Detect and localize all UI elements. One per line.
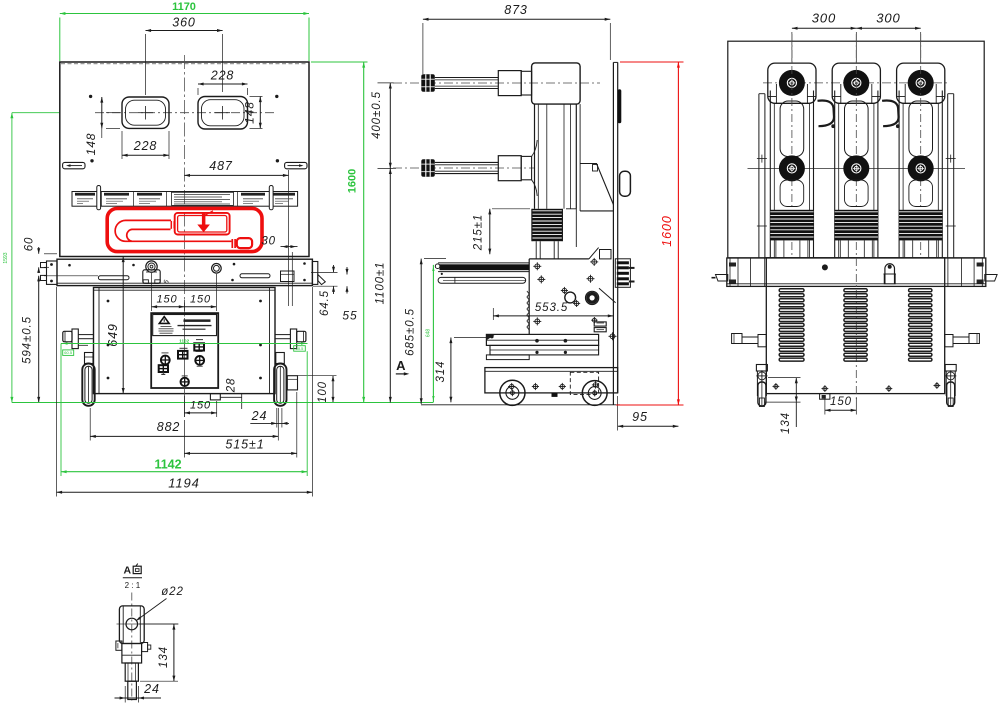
svg-text:24: 24 <box>251 409 268 423</box>
svg-text:A: A <box>124 565 132 577</box>
svg-text:ø22: ø22 <box>161 586 184 598</box>
svg-text:685±0.5: 685±0.5 <box>405 308 417 356</box>
svg-text:60.5: 60.5 <box>296 346 305 351</box>
svg-text:148: 148 <box>243 101 257 124</box>
svg-text:1194: 1194 <box>168 475 200 490</box>
svg-text:1170: 1170 <box>172 1 196 13</box>
svg-text:60: 60 <box>24 237 36 252</box>
svg-text:28: 28 <box>226 378 238 394</box>
svg-text:1600: 1600 <box>347 169 359 193</box>
svg-text:400±0.5: 400±0.5 <box>371 91 383 139</box>
svg-text:1142: 1142 <box>154 457 181 471</box>
svg-text:1100±1: 1100±1 <box>375 262 387 305</box>
svg-text:1600: 1600 <box>660 215 674 246</box>
svg-text:515±1: 515±1 <box>225 437 264 451</box>
svg-text:1102: 1102 <box>179 339 189 344</box>
svg-text:150: 150 <box>830 396 852 408</box>
svg-text:2 : 1: 2 : 1 <box>125 581 141 590</box>
svg-text:148: 148 <box>84 133 98 156</box>
svg-text:24: 24 <box>143 682 160 696</box>
svg-text:648: 648 <box>425 329 431 338</box>
svg-text:150: 150 <box>156 294 177 306</box>
svg-text:150: 150 <box>190 294 211 306</box>
svg-text:215±1: 215±1 <box>473 214 485 251</box>
svg-text:134: 134 <box>158 646 170 668</box>
svg-text:553.5: 553.5 <box>535 302 568 314</box>
svg-text:30: 30 <box>261 235 276 247</box>
svg-text:64.5: 64.5 <box>319 290 331 316</box>
svg-text:55: 55 <box>342 309 357 323</box>
svg-text:594±0.5: 594±0.5 <box>22 316 34 364</box>
svg-text:882: 882 <box>157 420 181 434</box>
svg-text:228: 228 <box>210 69 235 83</box>
svg-text:134: 134 <box>780 412 792 434</box>
svg-text:100: 100 <box>317 381 329 403</box>
svg-text:1593: 1593 <box>3 252 9 263</box>
svg-text:95: 95 <box>632 410 648 424</box>
svg-text:150: 150 <box>190 400 211 412</box>
svg-text:487: 487 <box>209 159 233 173</box>
svg-text:873: 873 <box>504 3 528 17</box>
svg-text:314: 314 <box>435 361 447 383</box>
svg-text:60.5: 60.5 <box>64 350 73 355</box>
svg-text:300: 300 <box>812 11 836 26</box>
svg-text:A: A <box>396 358 406 373</box>
svg-text:300: 300 <box>876 11 900 26</box>
svg-text:228: 228 <box>133 139 158 153</box>
svg-text:360: 360 <box>172 16 196 30</box>
